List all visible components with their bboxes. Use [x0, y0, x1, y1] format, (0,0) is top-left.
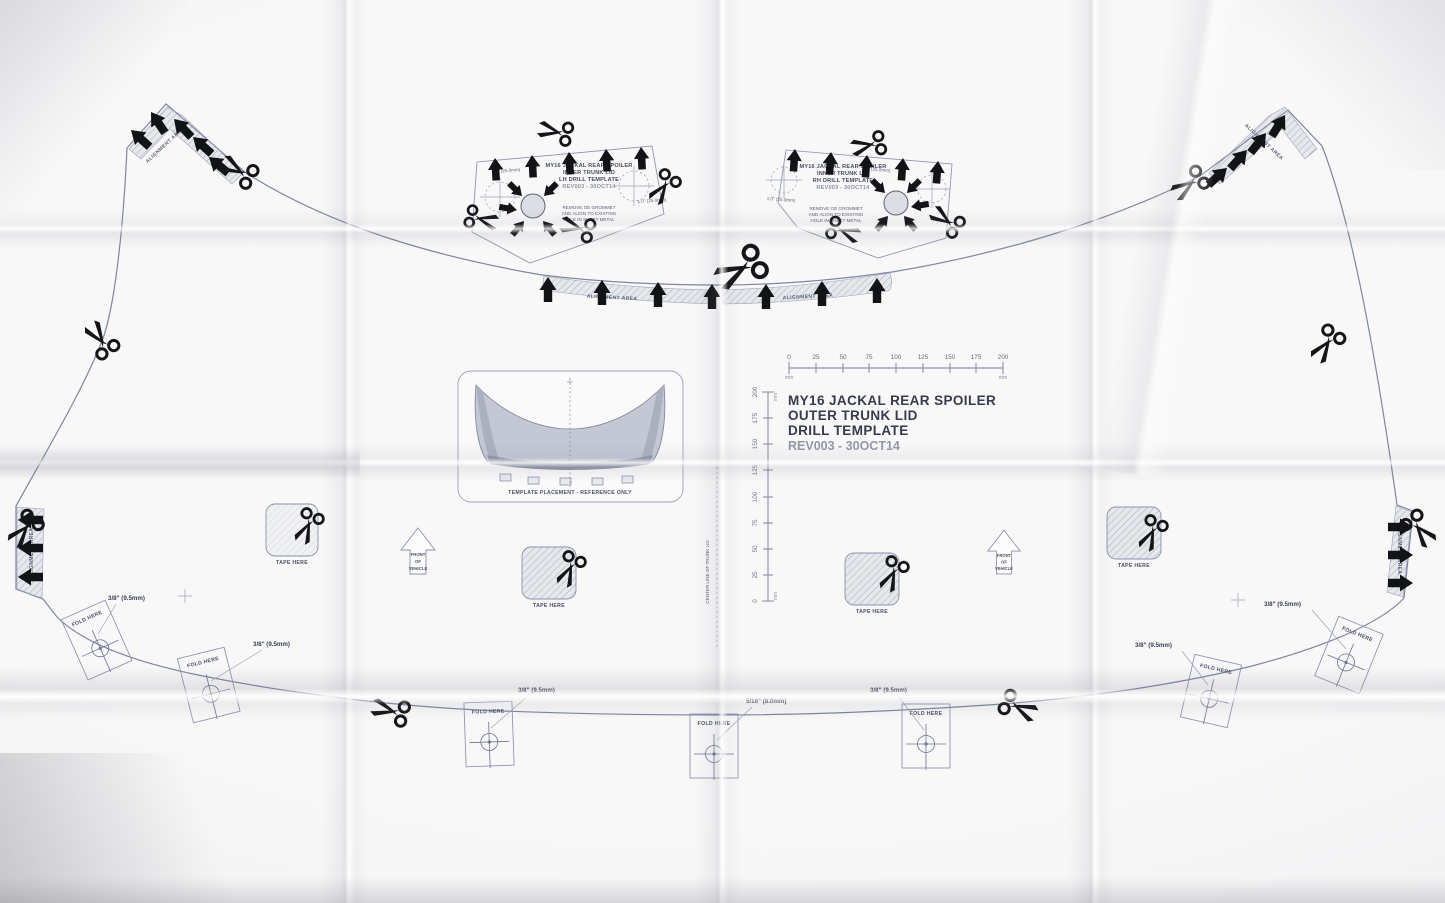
- rh-template-rev: REV003 - 30OCT14: [816, 185, 870, 191]
- rh-grommet-hole: [884, 191, 908, 215]
- ruler-tick-label: 50: [752, 545, 759, 553]
- alignment-arrow-icon: [704, 284, 721, 309]
- ruler-tick-label: 200: [752, 386, 759, 397]
- ruler-tick-label: 0: [787, 354, 791, 361]
- trunk-lid-illustration: TEMPLATE PLACEMENT - REFERENCE ONLY: [458, 371, 683, 502]
- grommet-arrow-icon: [872, 212, 893, 234]
- title-block: MY16 JACKAL REAR SPOILER OUTER TRUNK LID…: [788, 393, 996, 453]
- drill-target-icon: [694, 734, 734, 780]
- alignment-area-label: ALIGNMENT AREA: [587, 294, 638, 303]
- title-line-3: DRILL TEMPLATE: [788, 423, 909, 438]
- ruler-tick-label: 125: [918, 354, 929, 361]
- registration-cross: [178, 589, 192, 603]
- drill-target-icon: [1318, 636, 1372, 694]
- trunk-centerline: CENTER LINE OF TRUNK LID: [705, 467, 717, 650]
- ruler-tick-label: 100: [891, 354, 902, 361]
- drill-template-drawing: ALIGNMENT AREA ALIGNMENT AREA ALIGNMENT …: [0, 0, 1445, 903]
- ruler-unit-label: mm: [773, 393, 779, 401]
- alignment-arrow-icon: [894, 157, 911, 181]
- fold-tab: FOLD HERE 5/16" (8.0mm): [690, 698, 786, 780]
- trunk-clip: [622, 476, 633, 483]
- title-line-2: OUTER TRUNK LID: [788, 408, 918, 423]
- title-line-1: MY16 JACKAL REAR SPOILER: [788, 393, 996, 408]
- scale-ruler-horizontal: 0 25 50 75 100 125 150 175 200 mm mm: [785, 354, 1009, 381]
- grommet-arrow-icon: [498, 201, 518, 216]
- grommet-arrow-icon: [903, 176, 924, 197]
- outer-template-cut-outline: [16, 104, 1413, 715]
- front-label: FRONT: [411, 552, 426, 557]
- ruler-tick-label: 0: [752, 599, 759, 603]
- rh-note: REMOVE OE GROMMET: [809, 206, 862, 211]
- scissors-icon: [536, 117, 574, 146]
- front-label: VEHICLE: [409, 566, 428, 571]
- front-of-vehicle-arrow: FRONT OF VEHICLE: [988, 530, 1020, 574]
- drill-target-icon: [469, 721, 511, 768]
- fold-tab: FOLD HERE 3/8" (9.5mm): [1264, 601, 1383, 696]
- drill-size-label: 3/8" (9.5mm): [1264, 601, 1301, 608]
- cut-marks: [3, 117, 1442, 727]
- grommet-arrow-icon: [508, 217, 529, 239]
- lh-inner-template: MY16 JACKAL REAR SPOILER INNER TRUNK LID…: [472, 146, 667, 263]
- ruler-tick-label: 200: [998, 354, 1009, 361]
- front-label: OF: [415, 559, 421, 564]
- title-revision: REV003 - 30OCT14: [788, 439, 900, 453]
- grommet-arrow-icon: [540, 179, 561, 200]
- drill-size-label: 3/8" (9.5mm): [108, 595, 145, 602]
- scissors-icon: [1167, 164, 1212, 205]
- alignment-arrow-icon: [650, 282, 667, 307]
- ruler-unit-label: mm: [773, 592, 779, 600]
- front-label: FRONT: [997, 553, 1012, 558]
- tape-square: TAPE HERE: [522, 547, 576, 609]
- leader-line: [211, 650, 262, 681]
- ruler-tick-label: 100: [752, 491, 759, 502]
- ruler-tick-label: 50: [839, 354, 847, 361]
- fold-tab: FOLD HERE 3/8" (9.5mm): [870, 687, 950, 770]
- rh-template-subtitle: INNER TRUNK LID: [817, 171, 869, 177]
- tape-here-label: TAPE HERE: [533, 603, 565, 609]
- scissors-icon: [1305, 323, 1346, 368]
- ruler-unit-label: mm: [999, 375, 1007, 381]
- centerline-label: CENTER LINE OF TRUNK LID: [705, 540, 710, 604]
- tape-here-label: TAPE HERE: [1118, 563, 1150, 569]
- scissors-icon: [925, 201, 966, 239]
- fold-tab: FOLD HERE 3/8" (9.5mm): [177, 641, 289, 725]
- scissors-icon: [368, 694, 410, 727]
- ruler-tick-label: 175: [752, 412, 759, 423]
- tape-square-outline: [522, 547, 576, 599]
- fold-here-label: FOLD HERE: [698, 721, 731, 727]
- scissors-icon: [997, 689, 1041, 727]
- lh-grommet-hole: [521, 194, 545, 218]
- scissors-icon: [464, 205, 501, 234]
- scale-ruler-vertical: 200 175 150 125 100 75 50 25 0 mm mm: [752, 386, 779, 603]
- lh-note: REMOVE OE GROMMET: [562, 205, 615, 210]
- registration-cross: [1231, 593, 1245, 607]
- alignment-areas: ALIGNMENT AREA ALIGNMENT AREA ALIGNMENT …: [17, 107, 1412, 598]
- lh-template-variant: LH DRILL TEMPLATE: [559, 177, 619, 183]
- rh-template-variant: RH DRILL TEMPLATE: [813, 178, 874, 184]
- drill-size-label: 3/8" (9.5mm): [870, 687, 907, 694]
- ruler-tick-label: 25: [752, 571, 759, 579]
- ruler-tick-label: 175: [971, 354, 982, 361]
- fold-here-label: FOLD HERE: [472, 708, 505, 715]
- tape-here-label: TAPE HERE: [276, 560, 308, 566]
- grommet-arrow-icon: [538, 217, 559, 239]
- ruler-tick-label: 125: [752, 464, 759, 475]
- ruler-tick-label: 75: [752, 519, 759, 527]
- tape-square-outline: [845, 553, 899, 605]
- rh-note: HOLE IN SHEET METAL: [810, 218, 862, 223]
- alignment-arrow-icon: [524, 155, 540, 178]
- tape-here-label: TAPE HERE: [856, 609, 888, 615]
- rh-inner-template: MY16 JACKAL REAR SPOILER INNER TRUNK LID…: [766, 148, 952, 258]
- fold-tab: FOLD HERE 3/8" (9.5mm): [464, 687, 555, 769]
- lh-template-rev: REV003 - 30OCT14: [562, 184, 616, 190]
- rh-dim-label: 1.0" (25.0mm): [766, 196, 796, 203]
- front-of-vehicle-arrow: FRONT OF VEHICLE: [401, 528, 435, 574]
- front-label: VEHICLE: [995, 566, 1013, 571]
- fold-tab: FOLD HERE 3/8" (9.5mm): [61, 595, 145, 682]
- trunk-clip: [528, 477, 539, 484]
- drill-target-icon: [74, 622, 129, 680]
- trunk-clip: [560, 478, 571, 485]
- scissors-icon: [79, 317, 120, 362]
- drill-target-icon: [1184, 675, 1233, 729]
- grommet-arrow-icon: [899, 212, 920, 234]
- tape-square: TAPE HERE: [845, 553, 899, 615]
- fold-here-label: FOLD HERE: [187, 656, 220, 670]
- ruler-tick-label: 75: [865, 354, 873, 361]
- illustration-caption: TEMPLATE PLACEMENT - REFERENCE ONLY: [508, 490, 632, 496]
- trunk-clip: [592, 478, 603, 485]
- lh-note: AND ALIGN TO EXISTING: [562, 211, 617, 216]
- ruler-tick-label: 150: [945, 354, 956, 361]
- ruler-tick-label: 150: [752, 438, 759, 449]
- front-label: OF: [1001, 559, 1007, 564]
- grommet-arrow-icon: [910, 198, 930, 213]
- lh-template-title: MY16 JACKAL REAR SPOILER: [545, 163, 632, 169]
- drill-size-label: 3/8" (9.5mm): [1135, 642, 1172, 649]
- alignment-arrow-icon: [633, 147, 649, 170]
- trunk-clip: [500, 474, 511, 481]
- drill-size-label: 5/16" (8.0mm): [746, 698, 786, 705]
- fold-here-label: FOLD HERE: [71, 610, 104, 629]
- drill-size-label: 3/8" (9.5mm): [253, 641, 290, 648]
- fold-here-label: FOLD HERE: [910, 711, 943, 717]
- drill-target-icon: [906, 724, 946, 770]
- ruler-unit-label: mm: [785, 375, 793, 381]
- ruler-tick-label: 25: [812, 354, 820, 361]
- drill-size-label: 3/8" (9.5mm): [518, 687, 555, 694]
